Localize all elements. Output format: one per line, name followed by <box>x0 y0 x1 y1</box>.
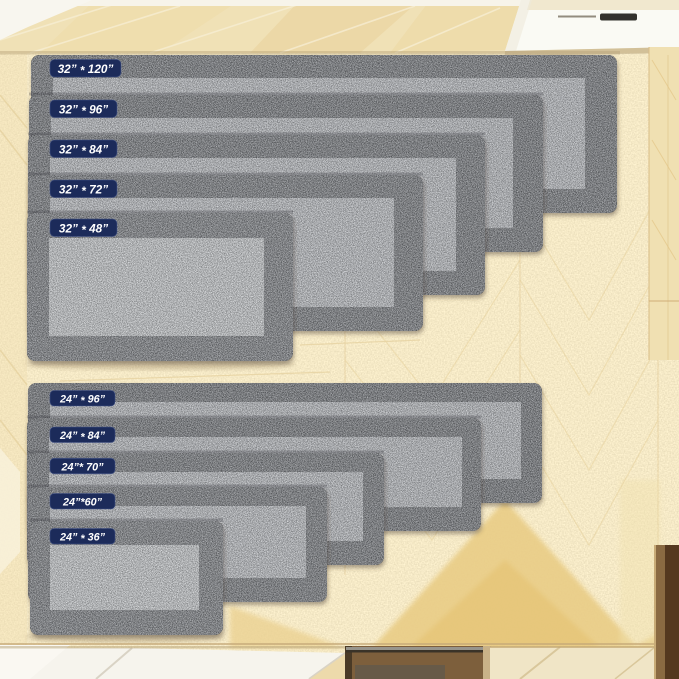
svg-text:32” * 120”: 32” * 120” <box>58 62 114 78</box>
svg-text:32” * 96”: 32” * 96” <box>59 102 108 118</box>
svg-text:24” * 36”: 24” * 36” <box>59 532 106 546</box>
svg-text:32” * 72”: 32” * 72” <box>59 182 108 198</box>
svg-text:24” * 84”: 24” * 84” <box>59 430 106 444</box>
svg-text:24” * 96”: 24” * 96” <box>59 394 106 408</box>
svg-text:32” * 48”: 32” * 48” <box>59 221 108 237</box>
svg-text:24”*60”: 24”*60” <box>62 497 103 509</box>
svg-text:32” * 84”: 32” * 84” <box>59 142 108 158</box>
svg-text:24”* 70”: 24”* 70” <box>60 461 104 473</box>
